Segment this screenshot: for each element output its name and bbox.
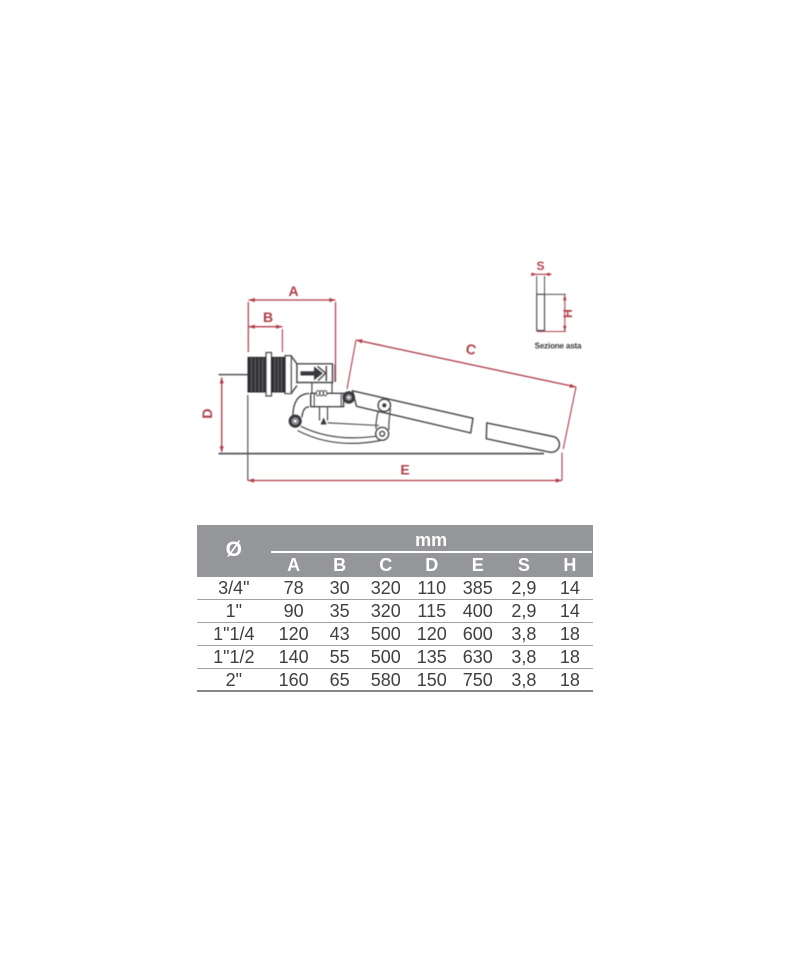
svg-text:S: S [536, 259, 544, 273]
svg-text:H: H [561, 309, 575, 318]
svg-text:E: E [400, 462, 409, 478]
svg-text:Sezione asta: Sezione asta [535, 342, 582, 351]
svg-text:C: C [464, 340, 477, 358]
svg-text:D: D [199, 408, 215, 418]
svg-text:B: B [263, 309, 273, 325]
svg-text:A: A [288, 283, 298, 299]
